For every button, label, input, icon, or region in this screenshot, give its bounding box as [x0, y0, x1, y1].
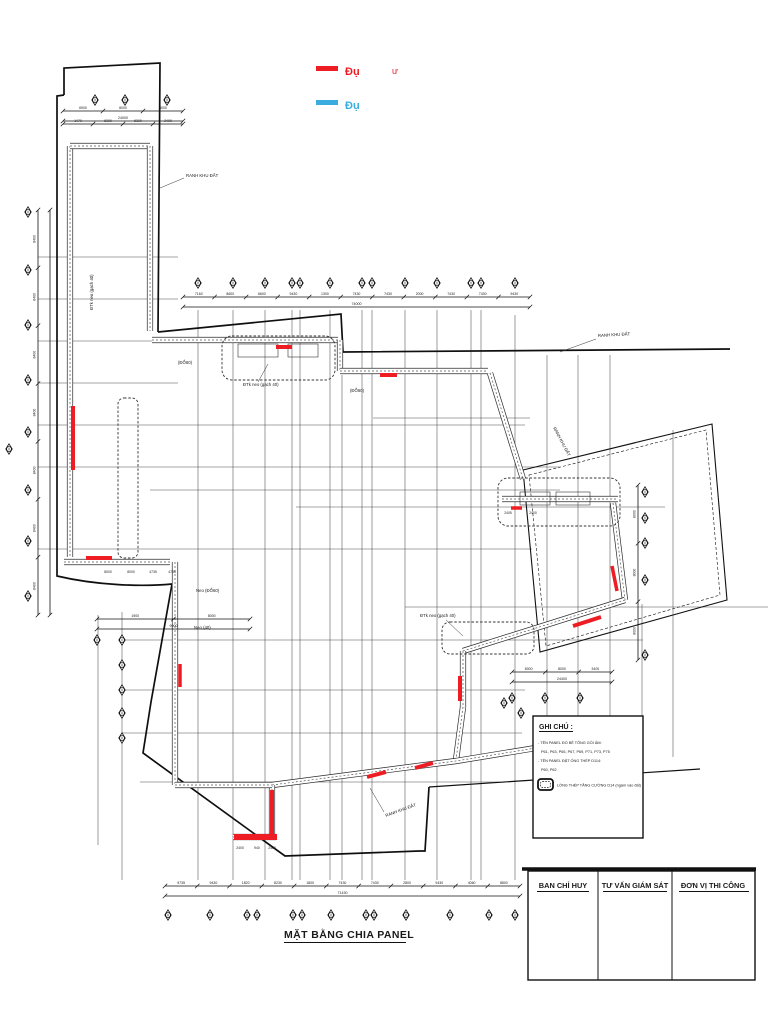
plan-label: ĐTk neo (gạch 40): [243, 382, 279, 387]
dim-value: 8000: [633, 569, 637, 577]
site-boundary-line: [57, 560, 429, 856]
signoff-col-don-vi-thi-cong: ĐƠN VỊ THI CÔNG: [681, 881, 745, 890]
highlighted-panel-segment: [573, 617, 601, 626]
drawing-sheet: 7160860066009430130074307430200074307430…: [0, 0, 768, 1024]
notes-line: P60, P62: [541, 768, 557, 772]
survey-marker-icon: [25, 427, 31, 437]
survey-marker-icon: [25, 207, 31, 217]
strip-dim-value: 940: [254, 846, 260, 850]
dim-value: 9735: [177, 881, 185, 885]
survey-marker-icon: [447, 910, 453, 920]
plan-label: RANH KHU ĐẤT: [552, 426, 572, 457]
highlighted-panel-segment: [612, 566, 617, 591]
dim-value: 2400: [164, 119, 172, 123]
plan-label: RANH KHU ĐẤT: [598, 331, 631, 338]
title-group: MẶT BẰNG CHIA PANEL: [284, 928, 414, 943]
survey-marker-icon: [262, 278, 268, 288]
dim-value: 8400: [33, 582, 37, 590]
survey-marker-icon: [165, 910, 171, 920]
dim-value: 7430: [339, 881, 347, 885]
survey-marker-icon: [195, 278, 201, 288]
survey-marker-icon: [642, 538, 648, 548]
dim-topleft-2: 1470630063002400: [61, 119, 185, 126]
dim-value: 6300: [134, 119, 142, 123]
dim-value: 9430: [510, 292, 518, 296]
site-plan-svg: 7160860066009430130074307430200074307430…: [0, 0, 768, 1024]
survey-marker-icon: [327, 278, 333, 288]
dim-value: 8000: [633, 627, 637, 635]
survey-marker-icon: [369, 278, 375, 288]
survey-marker-icon: [468, 278, 474, 288]
legend-red-label: Đụ: [345, 66, 360, 78]
dim-right-bottom: 80008000340024400: [510, 667, 614, 684]
survey-marker-icon: [6, 444, 12, 454]
survey-marker-icon: [119, 708, 125, 718]
survey-marker-icon: [92, 95, 98, 105]
grid-lines: [38, 257, 768, 880]
survey-marker-icon: [119, 635, 125, 645]
strip-dim-value: 8000: [127, 570, 135, 574]
dim-value: 7430: [479, 292, 487, 296]
survey-marker-icon: [486, 910, 492, 920]
dim-top: 7160860066009430130074307430200074307430…: [181, 292, 532, 309]
strip-dim-value: 2405: [504, 511, 512, 515]
dim-value: 4060: [468, 881, 476, 885]
strip-dim-value: 2400: [268, 846, 276, 850]
survey-marker-icon: [25, 375, 31, 385]
survey-marker-icon: [518, 708, 524, 718]
survey-marker-icon: [25, 265, 31, 275]
dim-value: 8000: [159, 106, 167, 110]
dim-value: 8000: [525, 667, 533, 671]
survey-marker-icon: [25, 536, 31, 546]
plan-label: ĐTk neo (gạch 40): [420, 613, 456, 618]
dim-value: 9430: [435, 881, 443, 885]
survey-marker-icon: [25, 320, 31, 330]
survey-marker-icon: [289, 278, 295, 288]
notes-icon-label: LỒNG THÉP TĂNG CƯỜNG D14 (ngàm vào đất): [557, 783, 642, 788]
strip-dim-value: 2400: [236, 846, 244, 850]
survey-marker-icon: [328, 910, 334, 920]
signoff-table: BAN CHỈ HUY TƯ VẤN GIÁM SÁT ĐƠN VỊ THI C…: [522, 869, 756, 980]
plan-label: (ĐỔ60): [350, 388, 365, 393]
survey-marker-icon: [244, 910, 250, 920]
signoff-col-tu-van-giam-sat: TƯ VẤN GIÁM SÁT: [602, 880, 669, 890]
site-boundary-line: [64, 63, 160, 332]
dim-value: 6300: [104, 119, 112, 123]
panel-cell: [288, 344, 318, 357]
dim-value: 8400: [33, 235, 37, 243]
dim-value: 8000: [119, 106, 127, 110]
survey-marker-icon: [642, 575, 648, 585]
dim-value: 8400: [33, 409, 37, 417]
dim-value: 8230: [274, 881, 282, 885]
notes-line: - TÊN PANEL ĐẶT ỐNG THÉP D114:: [538, 758, 601, 763]
survey-marker-icon: [509, 693, 515, 703]
dim-left: 8400840084008400840084008400: [33, 208, 41, 617]
survey-marker-icon: [164, 95, 170, 105]
dim-value: 8800: [500, 881, 508, 885]
dim-total: 24400: [557, 677, 567, 681]
dim-value: 8400: [33, 466, 37, 474]
strip-dim-value: 2400: [529, 511, 537, 515]
label-leader: [258, 364, 268, 382]
anchor-zone-outline: [442, 622, 534, 654]
dim-value: 7430: [384, 292, 392, 296]
survey-marker-icon: [363, 910, 369, 920]
adjacent-parcel-inset: [529, 430, 720, 646]
survey-marker-icon: [512, 278, 518, 288]
survey-marker-icon: [299, 910, 305, 920]
plan-label: RANH KHU ĐẤT: [186, 173, 219, 178]
dim-value: 7430: [447, 292, 455, 296]
survey-marker-icon: [501, 698, 507, 708]
strip-dim-value: 8000: [104, 570, 112, 574]
plan-label: ĐTk neo (gạch 40): [89, 274, 94, 310]
survey-marker-icon: [642, 650, 648, 660]
dim-value: 7160: [195, 292, 203, 296]
dim-left-2: [48, 208, 52, 617]
survey-marker-icon: [119, 733, 125, 743]
notes-border: [533, 716, 643, 838]
label-leader: [160, 178, 184, 188]
dim-value: 8000: [208, 614, 216, 618]
dim-value: 3400: [591, 667, 599, 671]
dim-value: 9430: [210, 881, 218, 885]
survey-marker-icon: [119, 660, 125, 670]
dim-value: 8600: [226, 292, 234, 296]
dim-bottom: 9735943018208230180074307430280094304060…: [163, 881, 522, 898]
survey-marker-icon: [25, 485, 31, 495]
survey-marker-icon: [25, 591, 31, 601]
dim-value: 6600: [258, 292, 266, 296]
survey-marker-icon: [512, 910, 518, 920]
survey-marker-icon: [642, 487, 648, 497]
notes-line: - TÊN PANEL ĐỔ BÊ TÔNG GỐI ÂM:: [538, 740, 602, 745]
survey-marker-icon: [254, 910, 260, 920]
plan-label: Neo (ĐỔ60): [196, 588, 220, 593]
dim-value: 8400: [33, 351, 37, 359]
dim-value: 1470: [74, 119, 82, 123]
dim-value: 2800: [403, 881, 411, 885]
plan-generated-layers: 7160860066009430130074307430200074307430…: [6, 63, 768, 920]
site-boundary-line: [158, 314, 730, 352]
notes-box: GHI CHÚ : - TÊN PANEL ĐỔ BÊ TÔNG GỐI ÂM:…: [533, 716, 643, 838]
dim-total: 9900: [170, 624, 178, 628]
signoff-col-ban-chi-huy: BAN CHỈ HUY: [539, 881, 588, 890]
legend-red-suffix: ư: [392, 66, 398, 76]
strip-dim-value: 4735: [168, 570, 176, 574]
survey-marker-icon: [642, 513, 648, 523]
dim-value: 8000: [633, 510, 637, 518]
dim-value: 1300: [321, 292, 329, 296]
adjacent-parcel-outline: [523, 424, 727, 652]
dim-total: 24000: [118, 116, 128, 120]
survey-marker-icon: [402, 278, 408, 288]
dim-value: 7430: [353, 292, 361, 296]
notes-line: P61, P63, P65, P67, P69, P71, P73, P75: [541, 750, 610, 754]
survey-marker-icon: [94, 635, 100, 645]
dim-total: 71430: [338, 891, 348, 895]
plan-label: RANH KHU ĐẤT: [385, 802, 417, 818]
dim-value: 1900: [131, 614, 139, 618]
dim-value: 6900: [79, 106, 87, 110]
panel-cell: [238, 344, 278, 357]
dim-value: 1820: [242, 881, 250, 885]
survey-marker-icon: [290, 910, 296, 920]
survey-marker-icon: [122, 95, 128, 105]
survey-marker-icon: [119, 685, 125, 695]
notes-heading: GHI CHÚ :: [539, 722, 573, 731]
anchor-zone-outline: [118, 398, 138, 558]
survey-marker-icon: [359, 278, 365, 288]
survey-marker-icon: [207, 910, 213, 920]
page-title: MẶT BẰNG CHIA PANEL: [284, 928, 414, 941]
dim-value: 8400: [33, 293, 37, 301]
dim-total: 74000: [352, 302, 362, 306]
survey-marker-icon: [230, 278, 236, 288]
plan-label: Neo (40): [194, 625, 211, 630]
strip-dim-value: 4735: [149, 570, 157, 574]
survey-marker-icon: [403, 910, 409, 920]
dim-right: 800080008000: [633, 483, 641, 662]
dim-value: 2000: [416, 292, 424, 296]
survey-marker-icon: [434, 278, 440, 288]
site-boundary-line: [57, 95, 64, 560]
dim-value: 8400: [33, 524, 37, 532]
plan-label: (ĐỔ60): [178, 360, 193, 365]
legend-blue-label: Đụ: [345, 100, 360, 112]
dim-value: 1800: [306, 881, 314, 885]
legend-red-swatch: [316, 66, 338, 71]
legend-blue-swatch: [316, 100, 338, 105]
survey-marker-icon: [371, 910, 377, 920]
dim-value: 7430: [371, 881, 379, 885]
panel-strip-centerline: [463, 600, 625, 651]
survey-marker-icon: [478, 278, 484, 288]
legend: Đụ ư Đụ: [316, 66, 398, 112]
dim-value: 8000: [558, 667, 566, 671]
survey-marker-icon: [297, 278, 303, 288]
dim-value: 9430: [290, 292, 298, 296]
